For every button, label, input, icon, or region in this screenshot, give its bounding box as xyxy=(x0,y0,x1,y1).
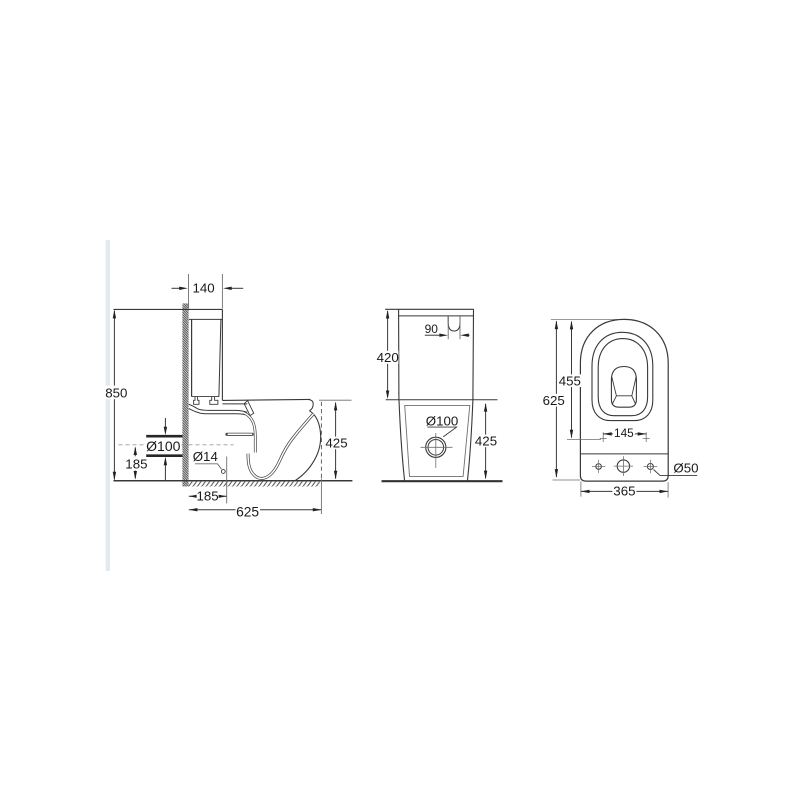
svg-text:145: 145 xyxy=(614,426,634,440)
svg-text:Ø100: Ø100 xyxy=(146,438,180,454)
svg-text:Ø50: Ø50 xyxy=(673,461,698,476)
svg-text:90: 90 xyxy=(425,322,439,336)
svg-text:625: 625 xyxy=(543,393,565,408)
svg-text:425: 425 xyxy=(475,433,497,448)
svg-text:Ø100: Ø100 xyxy=(426,414,459,429)
svg-text:455: 455 xyxy=(559,374,581,389)
svg-text:Ø14: Ø14 xyxy=(193,449,218,464)
svg-text:625: 625 xyxy=(236,504,259,519)
svg-text:420: 420 xyxy=(377,350,399,365)
svg-text:185: 185 xyxy=(125,456,147,471)
svg-text:365: 365 xyxy=(613,484,635,499)
svg-text:185: 185 xyxy=(197,489,219,504)
svg-text:140: 140 xyxy=(193,280,215,295)
svg-text:425: 425 xyxy=(325,435,347,450)
svg-text:850: 850 xyxy=(105,385,127,400)
